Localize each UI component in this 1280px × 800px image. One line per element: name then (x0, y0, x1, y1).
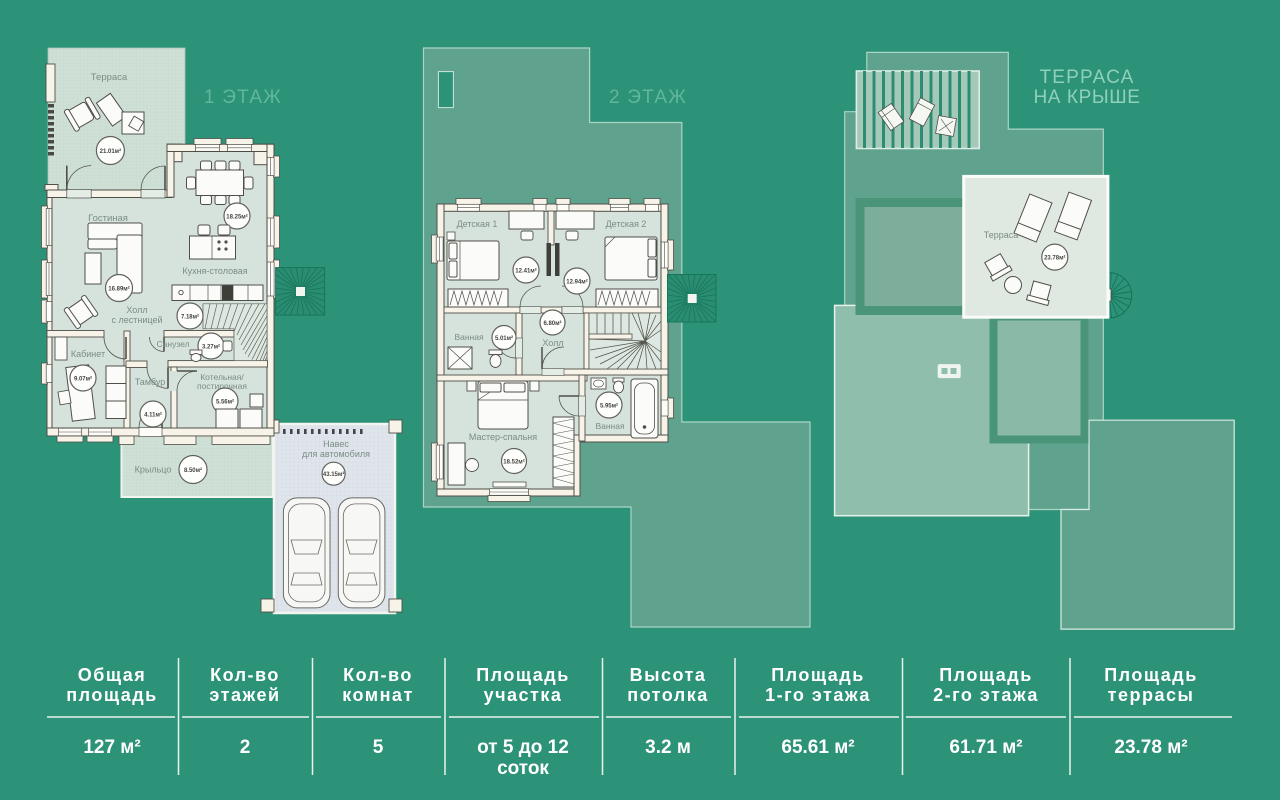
svg-text:Площадь: Площадь (939, 665, 1033, 685)
svg-text:Площадь: Площадь (476, 665, 570, 685)
svg-text:43.15м²: 43.15м² (323, 471, 344, 478)
svg-text:террасы: террасы (1108, 685, 1195, 705)
svg-text:23.78м²: 23.78м² (1044, 255, 1065, 262)
svg-text:61.71 м²: 61.71 м² (949, 737, 1022, 758)
svg-text:65.61 м²: 65.61 м² (781, 737, 854, 758)
svg-text:18.52м²: 18.52м² (503, 459, 524, 466)
svg-text:Кол-во: Кол-во (210, 665, 280, 685)
svg-text:этажей: этажей (209, 685, 280, 705)
svg-text:Детская 2: Детская 2 (606, 219, 647, 229)
svg-text:23.78 м²: 23.78 м² (1114, 737, 1187, 758)
svg-text:12.94м²: 12.94м² (566, 279, 587, 286)
svg-text:5: 5 (373, 737, 384, 758)
svg-text:Крыльцо: Крыльцо (135, 465, 172, 475)
svg-text:2-го этажа: 2-го этажа (933, 685, 1039, 705)
svg-text:18.25м²: 18.25м² (226, 214, 247, 221)
svg-text:Санузел: Санузел (156, 339, 189, 349)
svg-text:соток: соток (497, 758, 549, 779)
svg-text:Площадь: Площадь (1104, 665, 1198, 685)
svg-text:Кабинет: Кабинет (71, 349, 105, 359)
svg-text:9.07м²: 9.07м² (74, 376, 92, 383)
svg-text:комнат: комнат (342, 685, 414, 705)
svg-text:1 ЭТАЖ: 1 ЭТАЖ (204, 87, 282, 108)
svg-text:Мастер-спальня: Мастер-спальня (469, 432, 537, 442)
svg-text:12.41м²: 12.41м² (515, 268, 536, 275)
svg-text:1-го этажа: 1-го этажа (765, 685, 871, 705)
svg-text:с лестницей: с лестницей (112, 315, 163, 325)
svg-text:3.2 м: 3.2 м (645, 737, 691, 758)
svg-text:Кухня-столовая: Кухня-столовая (182, 266, 247, 276)
svg-text:НА КРЫШЕ: НА КРЫШЕ (1033, 87, 1140, 108)
svg-text:площадь: площадь (66, 685, 157, 705)
svg-text:3.27м²: 3.27м² (202, 344, 220, 351)
svg-text:5.56м²: 5.56м² (216, 399, 234, 406)
svg-text:Терраса: Терраса (91, 72, 128, 83)
svg-text:21.01м²: 21.01м² (100, 148, 121, 155)
svg-text:потолка: потолка (627, 685, 709, 705)
svg-text:Гостиная: Гостиная (88, 213, 128, 224)
svg-text:Холл: Холл (126, 305, 147, 315)
svg-text:Площадь: Площадь (771, 665, 865, 685)
svg-text:Общая: Общая (78, 665, 147, 685)
svg-text:Кол-во: Кол-во (343, 665, 413, 685)
svg-text:Высота: Высота (630, 665, 707, 685)
svg-text:Ванная: Ванная (595, 421, 625, 431)
svg-text:2: 2 (240, 737, 251, 758)
svg-text:2 ЭТАЖ: 2 ЭТАЖ (609, 87, 687, 108)
svg-text:5.95м²: 5.95м² (600, 403, 618, 410)
svg-text:4.11м²: 4.11м² (144, 412, 162, 419)
svg-text:Терраса: Терраса (984, 230, 1019, 240)
svg-text:Ванная: Ванная (454, 332, 484, 342)
svg-text:8.50м²: 8.50м² (184, 467, 202, 474)
svg-text:16.89м²: 16.89м² (108, 286, 129, 293)
svg-text:Навес: Навес (323, 439, 349, 449)
svg-text:Тамбур: Тамбур (135, 377, 166, 387)
svg-text:6.80м²: 6.80м² (543, 320, 561, 327)
svg-text:для автомобиля: для автомобиля (302, 449, 370, 459)
svg-text:от 5 до 12: от 5 до 12 (477, 737, 569, 758)
svg-text:участка: участка (484, 685, 563, 705)
svg-text:5.01м²: 5.01м² (495, 335, 513, 342)
svg-text:Детская 1: Детская 1 (457, 219, 498, 229)
svg-text:ТЕРРАСА: ТЕРРАСА (1040, 67, 1135, 88)
svg-text:127 м²: 127 м² (83, 737, 140, 758)
svg-text:7.18м²: 7.18м² (181, 314, 199, 321)
svg-text:Холл: Холл (542, 338, 563, 348)
